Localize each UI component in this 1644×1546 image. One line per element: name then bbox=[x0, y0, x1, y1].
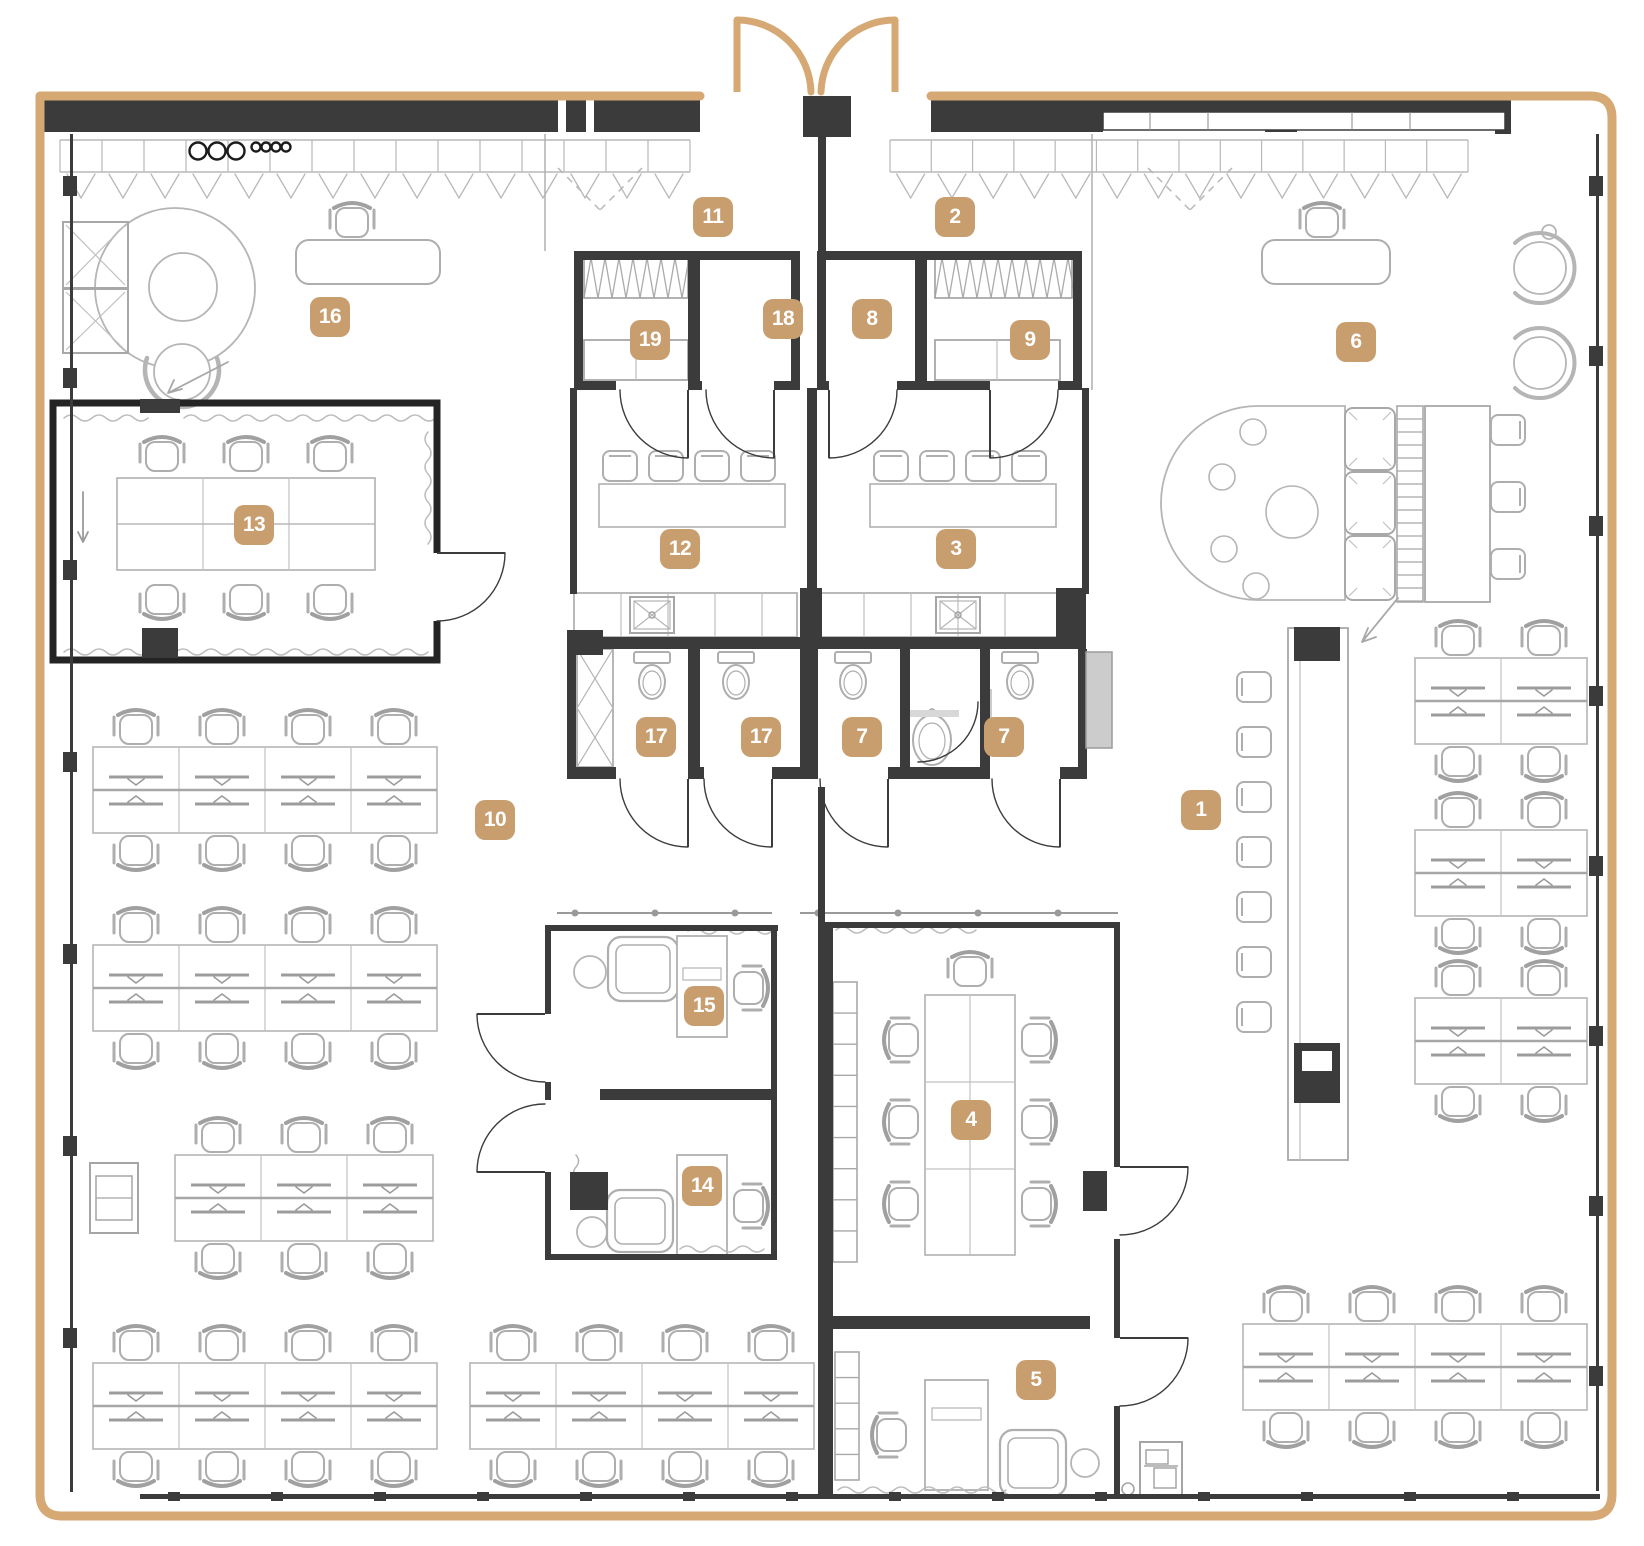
floor-plan: 12345677891011121314151617171819 bbox=[0, 0, 1644, 1546]
floor-plan-svg bbox=[0, 0, 1644, 1546]
